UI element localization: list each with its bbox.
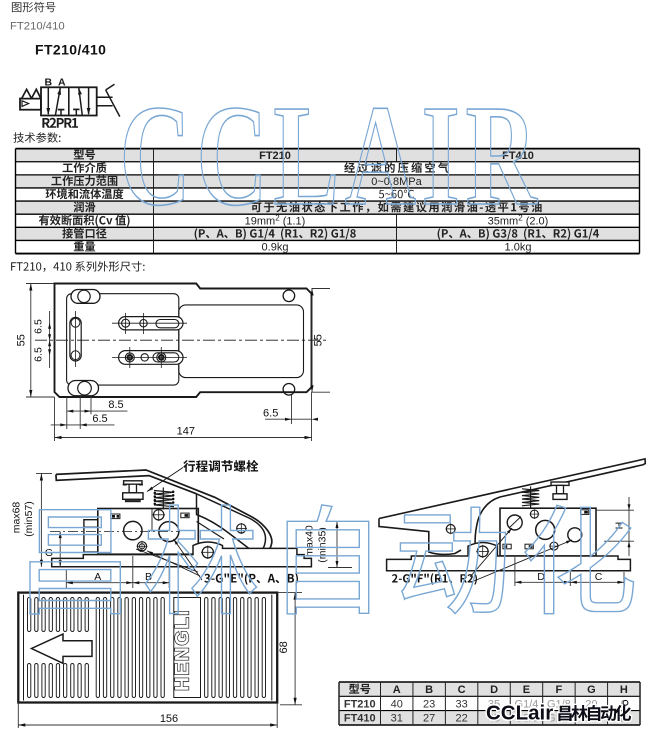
svg-text:22: 22 [455, 713, 467, 725]
svg-text:0.9kg: 0.9kg [262, 242, 289, 254]
svg-text:(min57): (min57) [23, 501, 35, 537]
svg-text:D: D [490, 684, 498, 696]
svg-text:FT210/410: FT210/410 [10, 21, 65, 33]
svg-text:C: C [595, 571, 603, 583]
svg-text:G: G [587, 684, 596, 696]
svg-text:8.5: 8.5 [108, 399, 123, 411]
svg-text:55: 55 [313, 334, 325, 346]
svg-text:6.5: 6.5 [33, 319, 45, 334]
svg-text:1.0kg: 1.0kg [505, 242, 532, 254]
svg-text:147: 147 [177, 426, 195, 438]
svg-text:55: 55 [16, 334, 28, 346]
svg-text:E: E [523, 684, 530, 696]
svg-text:FT410: FT410 [344, 713, 376, 725]
svg-text:max68: max68 [11, 502, 23, 534]
svg-text:6.5: 6.5 [33, 347, 45, 362]
svg-text:40: 40 [391, 698, 403, 710]
svg-text:156: 156 [160, 713, 178, 725]
svg-text:6.5: 6.5 [263, 407, 278, 419]
svg-text:F: F [556, 684, 563, 696]
svg-text:68: 68 [278, 641, 290, 653]
svg-text:CCLair: CCLair [486, 702, 553, 725]
svg-text:23: 23 [423, 698, 435, 710]
svg-text:6.5: 6.5 [92, 413, 107, 425]
svg-text:27: 27 [423, 713, 435, 725]
svg-text:(min35): (min35) [317, 527, 329, 563]
svg-text:C: C [458, 684, 466, 696]
svg-text:CCLAIR: CCLAIR [120, 74, 543, 235]
svg-text:H: H [620, 684, 628, 696]
svg-text:A: A [393, 684, 401, 696]
svg-text:B: B [425, 684, 433, 696]
svg-text:HENGLI: HENGLI [172, 609, 194, 691]
svg-text:33: 33 [455, 698, 467, 710]
svg-text:FT210/410: FT210/410 [35, 42, 106, 58]
svg-text:31: 31 [391, 713, 403, 725]
svg-text:FT210: FT210 [344, 698, 376, 710]
